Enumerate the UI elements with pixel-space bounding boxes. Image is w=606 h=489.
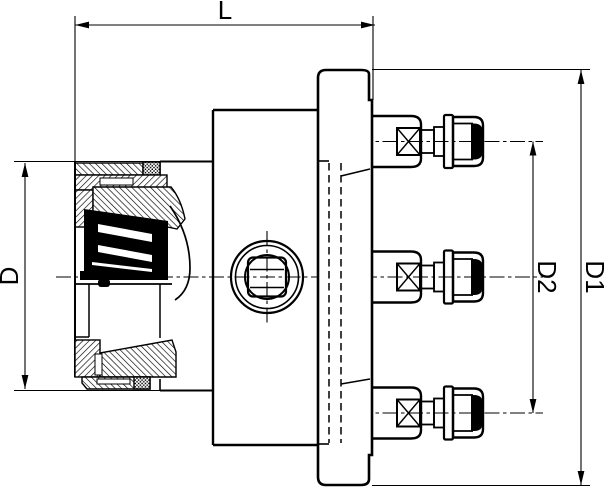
nut-outer-band-top bbox=[75, 163, 143, 175]
nut-wedge-slot-bottom bbox=[95, 354, 102, 375]
collet-lower-lip bbox=[98, 279, 110, 287]
nut-knurl-top bbox=[143, 162, 160, 175]
dim-label-length: L bbox=[218, 0, 232, 25]
mounting-flange bbox=[318, 70, 372, 485]
dim-label-bolt-circle: D2 bbox=[532, 260, 562, 293]
collet-chuck-section-drawing: L D D2 D1 bbox=[0, 0, 606, 489]
nut-cone-wedge-bottom bbox=[100, 340, 176, 377]
nut-knurl-bottom bbox=[134, 377, 150, 389]
flange-outline bbox=[318, 70, 372, 485]
dimension-D2: D2 bbox=[530, 142, 562, 414]
technical-drawing-canvas: L D D2 D1 bbox=[0, 0, 606, 489]
nut-ring-slot-top bbox=[100, 178, 133, 185]
dim-label-outer-diameter: D bbox=[0, 267, 24, 286]
dim-label-flange-diameter: D1 bbox=[580, 260, 606, 293]
nut-band-slot-bottom bbox=[97, 379, 130, 384]
collet-body bbox=[80, 209, 168, 280]
